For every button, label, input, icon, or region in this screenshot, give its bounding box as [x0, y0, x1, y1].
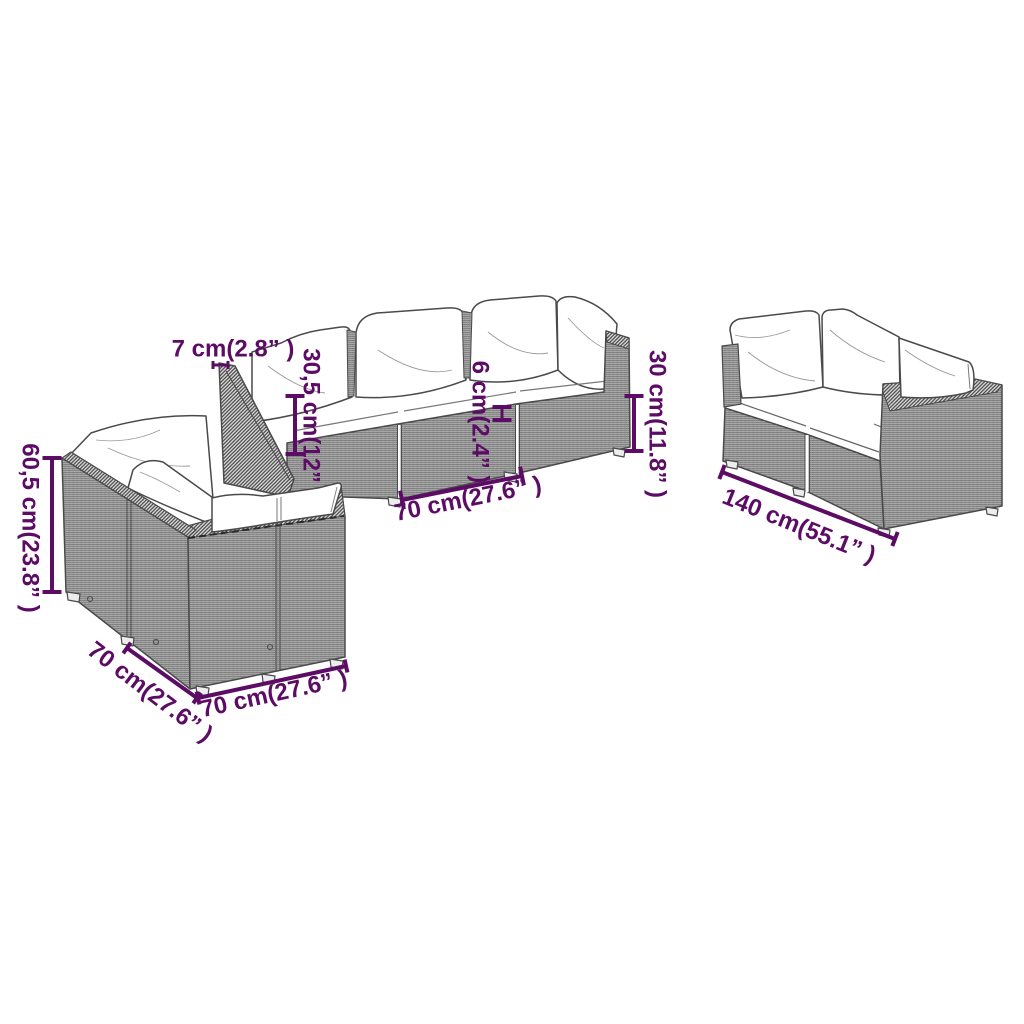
svg-text:60,5 cm(23.8” ): 60,5 cm(23.8” )	[17, 443, 44, 612]
svg-text:6 cm(2.4” ): 6 cm(2.4” )	[467, 361, 494, 484]
svg-text:30,5 cm(12” ): 30,5 cm(12” )	[298, 348, 325, 497]
svg-text:7 cm(2.8” ): 7 cm(2.8” )	[172, 336, 295, 363]
svg-text:30 cm(11.8” ): 30 cm(11.8” )	[644, 350, 671, 498]
